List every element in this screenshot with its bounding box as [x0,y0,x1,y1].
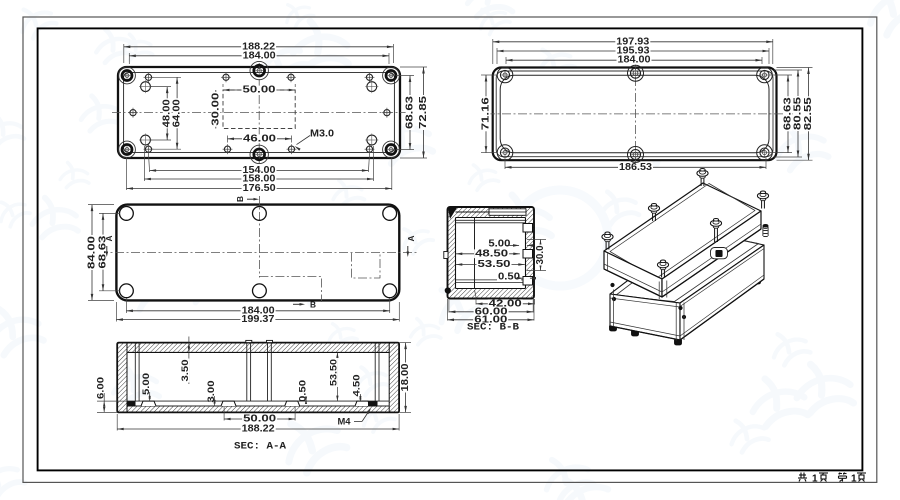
svg-text:72.85: 72.85 [418,95,429,129]
svg-text:3.50: 3.50 [180,360,190,382]
svg-text:B: B [235,196,245,202]
svg-text:53.50: 53.50 [329,359,339,386]
svg-text:199.37: 199.37 [241,314,275,325]
svg-text:4.50: 4.50 [352,375,362,397]
svg-text:A: A [104,236,114,242]
svg-text:71.16: 71.16 [481,97,492,131]
svg-text:184.00: 184.00 [243,50,277,61]
svg-text:18.00: 18.00 [400,363,411,392]
svg-text:M3.0: M3.0 [310,128,335,139]
svg-text:SEC: A-A: SEC: A-A [234,441,287,453]
svg-text:30.00: 30.00 [210,92,221,126]
svg-text:48.50: 48.50 [475,248,509,259]
svg-text:186.53: 186.53 [619,162,653,173]
svg-text:64.00: 64.00 [172,99,183,128]
svg-text:A: A [406,236,416,242]
svg-text:176.50: 176.50 [243,183,277,194]
svg-text:48.00: 48.00 [162,99,173,128]
svg-text:184.00: 184.00 [618,55,652,66]
svg-text:84.00: 84.00 [87,235,98,269]
svg-text:SEC: B-B: SEC: B-B [467,322,520,334]
svg-text:188.22: 188.22 [242,424,276,435]
svg-text:5.00: 5.00 [141,373,151,395]
svg-text:50.00: 50.00 [243,85,277,96]
svg-text:6.00: 6.00 [96,377,106,399]
svg-text:80.55: 80.55 [793,96,804,130]
svg-text:B: B [310,299,316,309]
svg-text:M4: M4 [338,417,352,427]
svg-text:1: 1 [851,474,857,485]
svg-text:3.00: 3.00 [206,381,216,403]
svg-text:68.63: 68.63 [405,95,416,129]
svg-text:30.0: 30.0 [535,245,546,265]
svg-text:1: 1 [812,474,818,485]
svg-text:46.00: 46.00 [243,133,277,144]
svg-text:0.50: 0.50 [297,380,307,402]
svg-text:53.50: 53.50 [478,259,512,270]
svg-text:82.55: 82.55 [803,97,814,131]
